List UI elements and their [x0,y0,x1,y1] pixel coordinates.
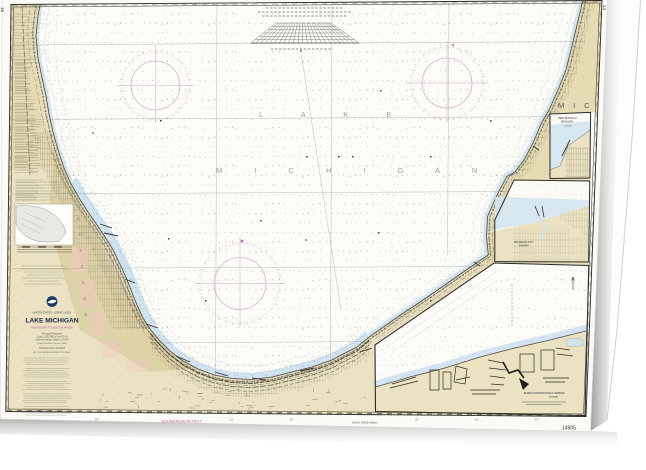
svg-text:87°: 87° [535,418,539,422]
svg-text:NEW BUFFALO: NEW BUFFALO [558,116,577,120]
svg-text:AT LOW WATER DATUM 577.5 FEET: AT LOW WATER DATUM 577.5 FEET [34,351,72,354]
svg-text:10': 10' [230,418,234,422]
svg-text:INDIANA: INDIANA [519,245,529,248]
svg-text:SOUNDINGS IN FEET: SOUNDINGS IN FEET [161,419,202,424]
svg-text:1:20,000: 1:20,000 [564,126,573,128]
svg-text:10': 10' [290,418,294,422]
svg-text:87°: 87° [95,418,99,422]
svg-text:C: C [81,264,84,269]
svg-text:H: H [79,232,82,237]
svg-text:MICHIGAN: MICHIGAN [561,120,573,123]
svg-text:(World Geodetic System 1984): (World Geodetic System 1984) [37,342,67,345]
svg-text:MICHIGAN CITY: MICHIGAN CITY [514,240,534,244]
svg-text:NOAA 14905 Edition: NOAA 14905 Edition [352,421,378,425]
svg-text:L A K E: L A K E [259,110,409,119]
svg-text:G: G [83,296,86,301]
svg-text:20': 20' [415,418,419,422]
svg-text:A: A [82,280,85,285]
svg-text:C: C [77,216,80,221]
svg-text:14: 14 [602,5,607,11]
svg-text:UNITED STATES - GREAT LAKES: UNITED STATES - GREAT LAKES [33,312,72,315]
svg-text:WAUKEGAN TO SOUTH HAVEN: WAUKEGAN TO SOUTH HAVEN [31,326,74,330]
svg-text:LAKE MICHIGAN: LAKE MICHIGAN [25,318,78,325]
svg-text:SOUNDINGS IN FEET: SOUNDINGS IN FEET [39,346,66,350]
svg-text:16: 16 [0,7,5,13]
svg-text:North American Datum of 1983: North American Datum of 1983 [36,339,69,342]
svg-text:14905: 14905 [562,426,576,432]
svg-text:BURNS INTERNATIONAL HARBOR: BURNS INTERNATIONAL HARBOR [524,392,565,395]
svg-text:I: I [80,248,81,253]
svg-text:INDIANA: INDIANA [549,395,558,398]
svg-text:M I C H I G A N: M I C H I G A N [216,166,492,175]
svg-text:10': 10' [475,418,479,422]
